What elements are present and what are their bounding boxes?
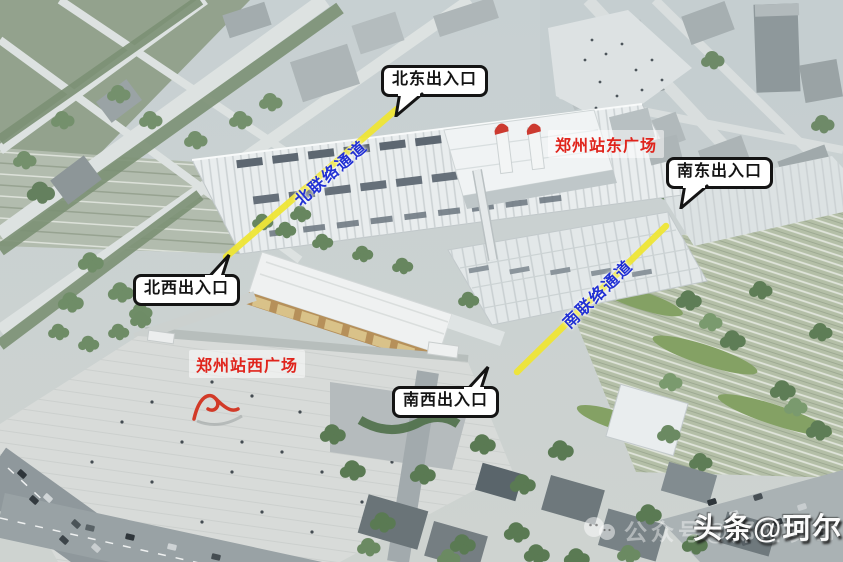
entrance-label-southeast: 南东出入口 [666,157,773,189]
east-square-label: 郑州站东广场 [548,130,664,158]
bubble-tail [673,182,713,209]
bubble-tail [193,254,233,281]
bubble-tail [452,366,492,393]
bubble-tail [388,90,428,117]
entrance-label-text: 北东出入口 [392,71,477,88]
west-square-label: 郑州站西广场 [189,350,305,378]
entrance-label-northwest: 北西出入口 [133,274,240,306]
entrance-label-text: 南西出入口 [403,392,488,409]
station-aerial-annotated-map: 北联络通道 南联络通道 郑州站东广场 郑州站西广场 北东出入口 南东出入口 北西… [0,0,843,562]
entrance-label-text: 北西出入口 [144,280,229,297]
toutiao-watermark: 头条@珂尔 [693,505,842,547]
wechat-icon [582,516,618,544]
entrance-label-southwest: 南西出入口 [392,386,499,418]
entrance-label-northeast: 北东出入口 [381,65,488,97]
entrance-label-text: 南东出入口 [677,163,762,180]
